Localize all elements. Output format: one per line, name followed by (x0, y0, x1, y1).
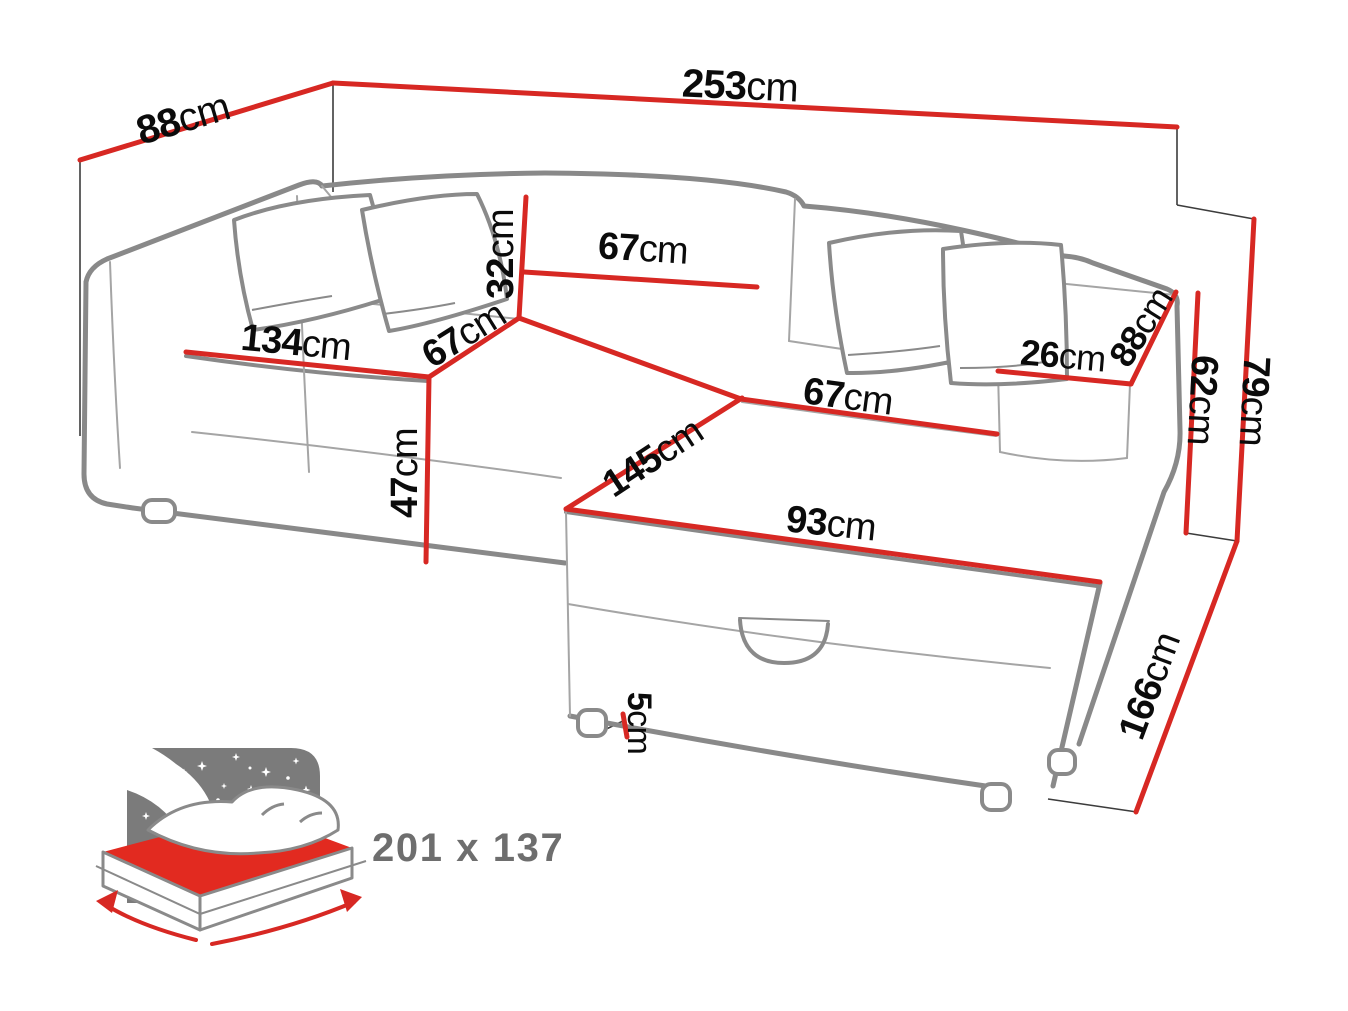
dim-line-backrest-height (519, 197, 526, 318)
pillow-right-2 (943, 243, 1067, 385)
pillows (234, 194, 1067, 384)
blanket (148, 787, 338, 854)
dim-line-seat-width (186, 352, 429, 377)
dim-line-total-width (333, 83, 1177, 127)
dim-line-back-depth-left (80, 83, 333, 160)
dim-line-seat-depth (429, 318, 519, 377)
leg-front-left (143, 500, 175, 522)
seat-front-edge (186, 356, 428, 381)
dim-line-armrest-depth (1131, 292, 1176, 384)
dim-line-seat-divider (519, 318, 741, 399)
sleeping-area-size: 201 x 137 (372, 826, 564, 871)
dim-line-backrest-width (524, 272, 757, 287)
dim-line-chaise-length (566, 398, 742, 509)
sofa-drawing (0, 0, 1348, 1011)
dim-line-side-depth (1136, 541, 1237, 812)
ottoman-top-front-edge (566, 512, 1097, 586)
ottoman-bottom-edge (570, 716, 1006, 789)
dim-line-ottoman-width (566, 509, 1100, 582)
left-armrest-side-edge (84, 282, 133, 508)
leg-ottoman-right (982, 784, 1010, 810)
base-bottom-edge (133, 508, 565, 563)
dimension-diagram: 253cm88cm32cm67cm134cm67cm67cm26cm88cm62… (0, 0, 1348, 1011)
dimension-lines (80, 83, 1254, 812)
leg-back-right (1049, 750, 1075, 774)
dim-line-chaise-seat-width (741, 399, 997, 434)
dim-line-seat-height (426, 377, 429, 562)
dim-line-total-height (1237, 219, 1254, 541)
dim-line-armrest-height (1186, 293, 1198, 533)
pillow-left-2 (362, 194, 507, 331)
dim-line-leg-height (623, 714, 627, 737)
leg-ottoman-left (578, 710, 606, 736)
sofa-bed-icon (96, 748, 366, 944)
